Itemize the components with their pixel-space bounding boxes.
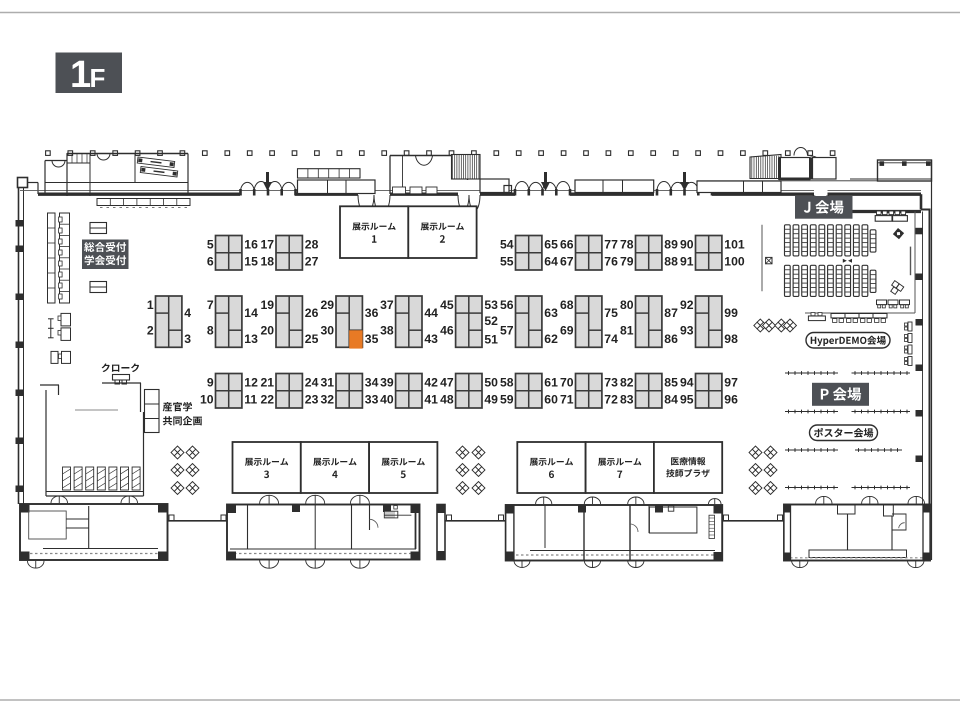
svg-text:85: 85 (664, 375, 678, 389)
svg-text:1: 1 (70, 54, 91, 96)
svg-text:68: 68 (560, 298, 574, 312)
svg-text:34: 34 (365, 375, 379, 389)
svg-text:101: 101 (724, 237, 745, 251)
svg-text:41: 41 (424, 393, 438, 407)
svg-text:44: 44 (424, 306, 438, 320)
svg-text:66: 66 (560, 237, 574, 251)
svg-text:65: 65 (544, 237, 558, 251)
svg-text:13: 13 (244, 332, 258, 346)
svg-text:75: 75 (604, 306, 618, 320)
svg-text:100: 100 (724, 255, 745, 269)
svg-text:52: 52 (484, 314, 498, 328)
svg-text:95: 95 (680, 393, 694, 407)
svg-text:51: 51 (484, 332, 498, 346)
svg-text:61: 61 (544, 375, 558, 389)
svg-text:42: 42 (424, 375, 438, 389)
svg-text:83: 83 (620, 393, 634, 407)
svg-text:77: 77 (604, 237, 618, 251)
svg-text:81: 81 (620, 324, 634, 338)
svg-text:33: 33 (365, 393, 379, 407)
svg-text:11: 11 (244, 393, 257, 407)
svg-text:1: 1 (147, 298, 154, 312)
svg-text:43: 43 (424, 332, 438, 346)
svg-text:8: 8 (207, 324, 214, 338)
svg-text:24: 24 (305, 375, 319, 389)
svg-text:56: 56 (500, 298, 514, 312)
svg-text:64: 64 (544, 255, 558, 269)
svg-text:70: 70 (560, 375, 574, 389)
svg-text:10: 10 (200, 393, 214, 407)
svg-text:17: 17 (261, 237, 275, 251)
svg-text:80: 80 (620, 298, 634, 312)
svg-text:18: 18 (261, 255, 275, 269)
svg-text:59: 59 (500, 393, 514, 407)
svg-text:79: 79 (620, 255, 634, 269)
svg-text:14: 14 (244, 306, 258, 320)
svg-text:28: 28 (305, 237, 319, 251)
svg-text:F: F (90, 63, 106, 93)
svg-text:58: 58 (500, 375, 514, 389)
svg-text:25: 25 (305, 332, 319, 346)
svg-text:90: 90 (680, 237, 694, 251)
svg-text:4: 4 (184, 306, 191, 320)
svg-text:37: 37 (380, 298, 394, 312)
svg-text:91: 91 (680, 255, 694, 269)
svg-text:54: 54 (500, 237, 514, 251)
svg-text:92: 92 (680, 298, 694, 312)
svg-text:5: 5 (207, 237, 214, 251)
svg-text:53: 53 (484, 298, 498, 312)
svg-text:15: 15 (244, 255, 258, 269)
svg-text:87: 87 (664, 306, 678, 320)
svg-text:38: 38 (380, 324, 394, 338)
svg-text:62: 62 (544, 332, 558, 346)
svg-text:32: 32 (321, 393, 335, 407)
svg-text:35: 35 (365, 332, 379, 346)
svg-text:60: 60 (544, 393, 558, 407)
svg-text:57: 57 (500, 324, 514, 338)
svg-text:30: 30 (321, 324, 335, 338)
svg-text:50: 50 (484, 375, 498, 389)
svg-text:93: 93 (680, 324, 694, 338)
svg-text:98: 98 (724, 332, 738, 346)
svg-text:3: 3 (184, 332, 191, 346)
svg-text:67: 67 (560, 255, 574, 269)
svg-text:74: 74 (604, 332, 618, 346)
svg-text:69: 69 (560, 324, 574, 338)
svg-text:22: 22 (261, 393, 275, 407)
svg-text:94: 94 (680, 375, 694, 389)
svg-text:9: 9 (207, 375, 214, 389)
svg-text:7: 7 (207, 298, 214, 312)
svg-text:86: 86 (664, 332, 678, 346)
svg-text:19: 19 (261, 298, 275, 312)
svg-text:29: 29 (321, 298, 335, 312)
svg-text:78: 78 (620, 237, 634, 251)
svg-text:20: 20 (261, 324, 275, 338)
svg-text:12: 12 (244, 375, 258, 389)
svg-text:40: 40 (380, 393, 394, 407)
svg-text:36: 36 (365, 306, 379, 320)
svg-text:39: 39 (380, 375, 394, 389)
svg-text:99: 99 (724, 306, 738, 320)
svg-text:73: 73 (604, 375, 618, 389)
svg-text:97: 97 (724, 375, 738, 389)
svg-text:23: 23 (305, 393, 319, 407)
svg-text:55: 55 (500, 255, 514, 269)
svg-text:31: 31 (321, 375, 335, 389)
svg-text:89: 89 (664, 237, 678, 251)
svg-text:6: 6 (207, 255, 214, 269)
svg-text:26: 26 (305, 306, 319, 320)
svg-text:49: 49 (484, 393, 498, 407)
svg-text:2: 2 (147, 324, 154, 338)
svg-text:45: 45 (440, 298, 454, 312)
svg-text:21: 21 (261, 375, 275, 389)
svg-text:88: 88 (664, 255, 678, 269)
svg-text:96: 96 (724, 393, 738, 407)
svg-text:82: 82 (620, 375, 634, 389)
svg-text:47: 47 (440, 375, 454, 389)
svg-text:76: 76 (604, 255, 618, 269)
svg-text:72: 72 (604, 393, 618, 407)
svg-text:16: 16 (244, 237, 258, 251)
svg-text:63: 63 (544, 306, 558, 320)
svg-text:27: 27 (305, 255, 319, 269)
svg-text:48: 48 (440, 393, 454, 407)
svg-text:71: 71 (560, 393, 574, 407)
svg-text:46: 46 (440, 324, 454, 338)
svg-text:84: 84 (664, 393, 678, 407)
